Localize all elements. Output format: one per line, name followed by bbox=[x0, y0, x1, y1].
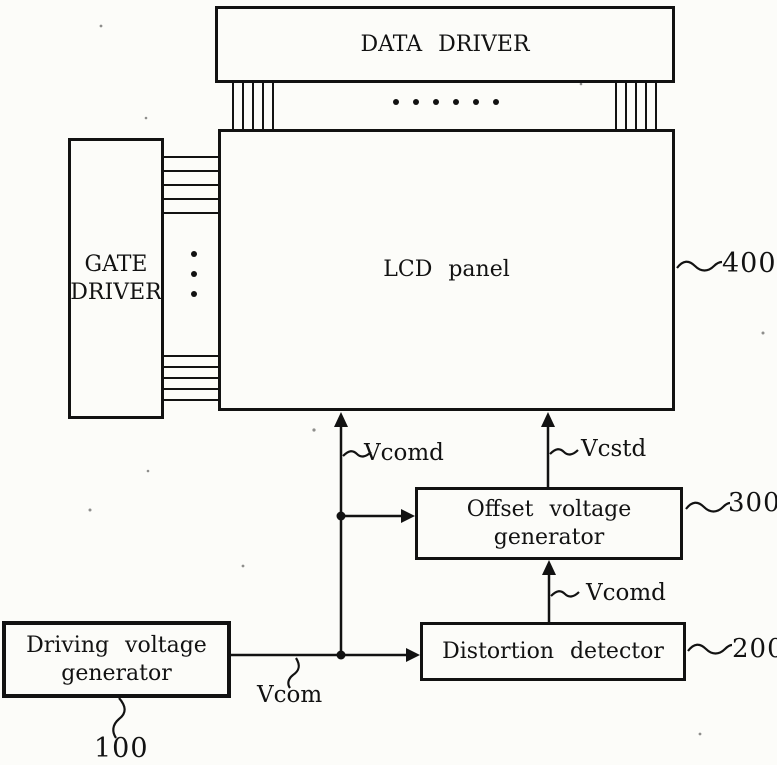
gate-driver-label-line2: DRIVER bbox=[70, 279, 161, 307]
lcd-panel-box: LCD panel bbox=[218, 129, 675, 411]
vcomd-riser-line bbox=[334, 412, 348, 655]
arrowhead-into-distortion-detector bbox=[406, 648, 420, 662]
leader-400 bbox=[677, 262, 722, 271]
lcd-panel-label: LCD panel bbox=[383, 256, 510, 284]
arrowhead-into-offset-generator bbox=[401, 509, 415, 523]
offset-voltage-generator-box: Offset voltage generator bbox=[415, 487, 683, 560]
offset-generator-label-line1: Offset voltage bbox=[467, 496, 632, 524]
data-driver-label: DATA DRIVER bbox=[360, 31, 529, 59]
leader-vcstd bbox=[550, 449, 578, 454]
signal-label-vcom: Vcom bbox=[257, 682, 322, 708]
signal-label-vcomd-upper: Vcomd bbox=[364, 440, 444, 466]
gate-driver-label-line1: GATE bbox=[85, 251, 148, 279]
ref-400: 400 bbox=[722, 248, 777, 279]
ref-300: 300 bbox=[728, 488, 777, 518]
vcomd-lower-line bbox=[542, 560, 556, 622]
leader-vcomd-lower bbox=[551, 591, 579, 596]
distortion-detector-label: Distortion detector bbox=[442, 638, 664, 666]
arrowhead-into-offset-bottom bbox=[542, 560, 556, 575]
gate-bus-top bbox=[164, 157, 218, 213]
offset-generator-label-line2: generator bbox=[494, 524, 605, 552]
gate-bus-bottom bbox=[164, 356, 218, 400]
leader-100 bbox=[113, 698, 124, 738]
leader-300 bbox=[686, 503, 730, 512]
data-driver-box: DATA DRIVER bbox=[215, 6, 675, 83]
ref-200: 200 bbox=[732, 634, 777, 664]
gate-driver-box: GATE DRIVER bbox=[68, 138, 164, 419]
signal-label-vcomd-lower: Vcomd bbox=[586, 580, 666, 606]
gate-bus-ellipsis-dots bbox=[191, 251, 197, 297]
signal-label-vcstd: Vcstd bbox=[581, 436, 646, 462]
vcstd-line bbox=[541, 412, 555, 487]
offset-feed-line bbox=[341, 509, 415, 523]
patent-figure: DATA DRIVER GATE DRIVER LCD panel Offset… bbox=[0, 0, 777, 765]
data-bus-right bbox=[616, 83, 656, 129]
driving-generator-label-line2: generator bbox=[61, 660, 172, 688]
data-bus-ellipsis-dots bbox=[393, 99, 499, 105]
driving-voltage-generator-box: Driving voltage generator bbox=[2, 621, 231, 698]
vcom-line bbox=[231, 648, 420, 662]
ref-100: 100 bbox=[94, 733, 149, 764]
arrowhead-into-lcd-right bbox=[541, 412, 555, 427]
driving-generator-label-line1: Driving voltage bbox=[26, 632, 207, 660]
arrowhead-into-lcd-left bbox=[334, 412, 348, 427]
distortion-detector-box: Distortion detector bbox=[420, 622, 686, 681]
leader-200 bbox=[688, 645, 732, 654]
data-bus-left bbox=[233, 83, 273, 129]
